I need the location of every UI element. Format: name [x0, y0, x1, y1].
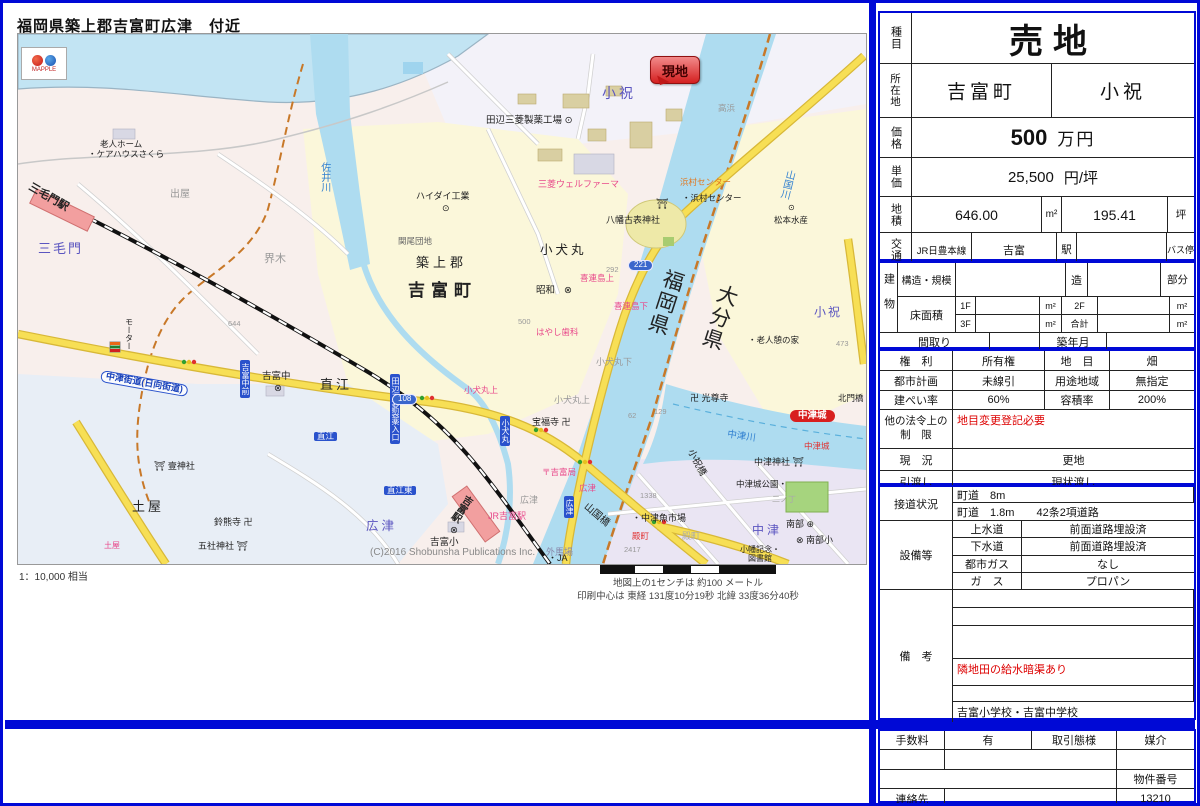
- landcat-value: 畑: [1147, 353, 1158, 369]
- map-label: 小祝橋: [685, 448, 707, 478]
- road-line-1: 町道 8m: [957, 487, 1005, 503]
- site-marker-label: 現地: [662, 61, 688, 80]
- map-label: 大分県: [697, 281, 740, 354]
- transport-label: 交通: [888, 238, 904, 262]
- map-label: 佐井川: [318, 162, 329, 192]
- map-label: ・老人憩の家: [748, 336, 799, 345]
- transport-line: JR日豊本線: [917, 243, 967, 257]
- map-label: 108: [392, 394, 417, 405]
- scale-caption: 地図上の1センチは 約100 メートル: [563, 575, 813, 589]
- built-date-label: 築年月: [1057, 334, 1090, 350]
- remarks-warning: 隣地田の給水暗渠あり: [957, 661, 1067, 677]
- map-label: 広津: [366, 520, 397, 534]
- map-label: 広津: [579, 484, 596, 493]
- globe-icon: [45, 55, 56, 66]
- map-label: 三毛門駅: [26, 182, 70, 214]
- map-label: ⊗: [564, 286, 572, 296]
- floor2-label: 2F: [1074, 301, 1085, 311]
- details-table: 接道状況 町道 8m 町道 1.8m 42条2項道路 設備等 上水道 前面道路埋…: [878, 485, 1196, 720]
- map-label: 吉富駅: [447, 492, 473, 523]
- zou-label: 造: [1071, 272, 1082, 288]
- map-canvas: 小祝高浜田辺三菱製薬工場 ⊙老人ホーム・ケアハウスさくら三毛門駅三毛門出屋界木佐…: [17, 33, 867, 565]
- broker-table: 手数料 有 取引態様 媒介 物件番号 連絡先 13210: [878, 729, 1196, 803]
- map-label: 直江: [320, 378, 352, 392]
- fee-label: 手数料: [896, 732, 929, 748]
- map-label: 福岡県: [643, 266, 686, 339]
- map-label: 浜村センター: [680, 178, 731, 187]
- map-label: 土屋: [104, 542, 120, 551]
- map-label: ・中津魚市場: [632, 514, 686, 524]
- map-label: 三菱ウェルファーマ: [538, 180, 619, 190]
- legal-table: 権 利 所有権 地 目 畑 都市計画 未線引 用途地域 無指定 建ぺい率 60%…: [878, 349, 1196, 485]
- deal-type-value: 媒介: [1145, 732, 1167, 748]
- unit-price-label: 単価: [888, 165, 904, 189]
- map-label: 広津: [520, 496, 538, 506]
- price-value: 500: [1011, 125, 1048, 151]
- madori-label: 間取り: [918, 334, 951, 350]
- map-label: ⊙: [788, 204, 795, 213]
- citygas-label: 都市ガス: [965, 556, 1009, 572]
- cityplan-value: 未線引: [982, 373, 1015, 389]
- map-label: 〒吉富局: [542, 468, 576, 477]
- map-label: 小祝: [602, 86, 636, 101]
- map-label: 松本水産: [774, 216, 808, 225]
- map-label: 中津城: [804, 442, 830, 451]
- map-label: 小犬丸上: [464, 386, 498, 395]
- panel-divider: [869, 3, 876, 806]
- map-label: 直江東: [384, 486, 416, 495]
- unit-price-value: 25,500: [1008, 169, 1054, 186]
- map-label: ⛩ 壹神社: [154, 462, 195, 472]
- map-label: 129: [654, 408, 667, 416]
- mapple-logo: MAPPLE: [21, 47, 67, 80]
- apple-icon: [32, 55, 43, 66]
- map-label: 卍 光尊寺: [690, 394, 729, 404]
- map-label: 広津: [564, 496, 574, 518]
- bus-stop-label: バス停: [1167, 243, 1194, 256]
- map-label: はやし歯科: [536, 328, 579, 337]
- deal-type-label: 取引態様: [1052, 732, 1096, 748]
- building-table: 建物 構造・規模 造 部分 床面積 1F m²: [878, 261, 1196, 349]
- remarks-schools: 吉富小学校・吉富中学校: [957, 704, 1078, 720]
- floor-area-label: 床面積: [910, 307, 943, 323]
- map-label: 高浜: [718, 104, 735, 113]
- status-label: 現 況: [900, 452, 933, 468]
- map-label: 喜連島下: [614, 302, 648, 311]
- map-label: ・ケアハウスさくら: [88, 150, 164, 159]
- map-label: 八幡古表神社: [606, 216, 660, 226]
- map-label: 直江: [314, 432, 337, 441]
- road-access-label: 接道状況: [894, 496, 938, 512]
- scale-ratio: 1：10,000 相当: [19, 568, 88, 583]
- location-label: 所在地: [888, 73, 903, 108]
- map-label: 中津街道(日向街道): [100, 370, 189, 397]
- summary-table: 種目 売地 所在地 吉富町 小祝 価格 500万円 単価 25,500円/坪 地…: [878, 11, 1196, 261]
- water-label: 上水道: [971, 521, 1004, 537]
- map-label: 山国川: [777, 168, 795, 200]
- facilities-label: 設備等: [900, 547, 933, 563]
- landcat-label: 地 目: [1061, 353, 1094, 369]
- property-no-label: 物件番号: [1134, 771, 1178, 787]
- transport-station: 吉富: [1003, 242, 1025, 258]
- gas-label: ガ ス: [971, 573, 1004, 589]
- map-label: (C)2016 Shobunsha Publications Inc.: [370, 548, 535, 559]
- fee-value: 有: [983, 732, 994, 748]
- map-label: 五社神社 ⛩: [198, 542, 248, 552]
- bcr-value: 60%: [987, 394, 1009, 406]
- property-no-value: 13210: [1140, 793, 1171, 805]
- other-law-label-2: 制 限: [900, 429, 932, 443]
- map-label: ハイダイ工業: [416, 192, 469, 202]
- map-label: 図書館: [748, 555, 772, 564]
- other-law-value: 地目変更登記必要: [957, 412, 1045, 428]
- unit-price-unit: 円/坪: [1064, 167, 1098, 188]
- zone-value: 無指定: [1136, 373, 1169, 389]
- map-label: 出屋: [170, 190, 190, 201]
- total-label: 合計: [1070, 317, 1088, 330]
- location-city: 吉富町: [947, 77, 1016, 104]
- map-label: 500: [518, 318, 531, 326]
- map-label: ⊙: [442, 204, 450, 214]
- rights-label: 権 利: [900, 353, 933, 369]
- print-center-coords: 印刷中心は 東経 131度10分19秒 北緯 33度36分40秒: [523, 588, 853, 602]
- gas-value: プロパン: [1086, 573, 1131, 589]
- map-label: 田辺三菱製薬入口: [390, 374, 400, 444]
- scale-bar: [600, 565, 776, 574]
- map-label: 南部 ⊕: [786, 520, 814, 530]
- map-label: JR吉富駅: [488, 512, 526, 522]
- part-label: 部分: [1167, 272, 1188, 287]
- map-label: ・浜村センター: [682, 194, 742, 203]
- map-label: 小祝: [814, 306, 842, 319]
- land-area-label: 地積: [888, 203, 904, 227]
- floor3-label: 3F: [960, 319, 971, 329]
- map-label: 小犬丸: [540, 244, 587, 258]
- floor1-label: 1F: [960, 301, 971, 311]
- map-label: ・JA: [548, 554, 568, 564]
- map-label: 宝福寺 卍: [532, 418, 571, 428]
- map-label: ⊗ 南部小: [796, 536, 833, 546]
- map-label: 473: [836, 340, 849, 348]
- land-area-tsubo: 195.41: [1093, 207, 1136, 223]
- map-label: 中津川: [727, 430, 757, 444]
- map-label: 二ノ丁: [772, 496, 796, 505]
- map-label: 昭和: [536, 286, 555, 296]
- map-label: 北門橋: [838, 394, 864, 403]
- map-label: 小犬丸上: [554, 396, 590, 406]
- far-value: 200%: [1138, 394, 1166, 406]
- price-unit: 万円: [1057, 125, 1095, 150]
- map-label: 殿町: [632, 532, 649, 541]
- structure-label: 構造・規模: [902, 272, 952, 287]
- cityplan-label: 都市計画: [894, 373, 938, 389]
- contact-label: 連絡先: [896, 791, 929, 806]
- m2-unit: m²: [1177, 301, 1188, 311]
- map-label: 644: [228, 320, 241, 328]
- map-labels-layer: 小祝高浜田辺三菱製薬工場 ⊙老人ホーム・ケアハウスさくら三毛門駅三毛門出屋界木佐…: [18, 34, 866, 564]
- other-law-label-1: 他の法令上の: [885, 415, 948, 429]
- zone-label: 用途地域: [1055, 373, 1099, 389]
- m2-unit: m²: [1045, 301, 1056, 311]
- map-label: 土屋: [132, 500, 164, 514]
- map-label: 2417: [624, 546, 641, 554]
- category-label: 種目: [888, 26, 904, 50]
- m2-unit: m²: [1046, 209, 1058, 220]
- map-label: 三毛門: [38, 242, 83, 256]
- map-label: ⊗: [450, 526, 458, 536]
- map-label: 山国橋: [581, 502, 611, 530]
- building-label: 建物: [881, 273, 897, 323]
- map-label: 殿町: [682, 532, 700, 542]
- map-label: 221: [628, 260, 653, 271]
- map-label: 老人ホーム: [100, 140, 142, 149]
- map-label: ⊗: [274, 384, 282, 394]
- map-label: 田辺三菱製薬工場 ⊙: [486, 116, 573, 126]
- map-label: 築上郡: [416, 256, 467, 270]
- location-area: 小祝: [1100, 77, 1146, 104]
- rights-value: 所有権: [982, 353, 1015, 369]
- land-area-m2: 646.00: [955, 207, 998, 223]
- m2-unit: m²: [1045, 319, 1056, 329]
- citygas-value: なし: [1097, 556, 1119, 572]
- sewer-label: 下水道: [971, 538, 1004, 554]
- map-label: 吉富中前: [240, 360, 250, 398]
- map-label: モーター: [124, 318, 133, 350]
- map-label: 1338: [640, 492, 657, 500]
- map-panel: 福岡県築上郡吉富町広津 付近: [3, 3, 869, 720]
- water-value: 前面道路埋設済: [1070, 521, 1147, 537]
- remarks-label: 備 考: [900, 648, 933, 664]
- price-label: 価格: [888, 126, 904, 150]
- map-label: ⛩: [656, 200, 669, 211]
- m2-unit: m²: [1177, 319, 1188, 329]
- tsubo-unit: 坪: [1176, 207, 1187, 222]
- map-label: 中津城公園・: [736, 480, 787, 489]
- map-label: 中津: [752, 524, 782, 537]
- map-label: 中津城: [790, 410, 835, 422]
- far-label: 容積率: [1061, 392, 1094, 408]
- category-value: 売地: [1009, 14, 1097, 63]
- map-label: 中津神社 ⛩: [754, 458, 804, 468]
- map-label: 吉富町: [408, 282, 477, 300]
- map-label: 62: [628, 412, 636, 420]
- bcr-label: 建ぺい率: [894, 392, 938, 408]
- map-label: 喜連島上: [580, 274, 614, 283]
- mapple-logo-text: MAPPLE: [32, 67, 56, 73]
- map-label: 小犬丸: [500, 416, 510, 446]
- site-marker: 現地: [650, 56, 700, 84]
- status-value: 更地: [1063, 452, 1085, 468]
- map-label: 小犬丸下: [596, 358, 632, 368]
- station-suffix: 駅: [1061, 242, 1072, 257]
- map-label: 界木: [264, 254, 286, 266]
- road-line-2: 町道 1.8m 42条2項道路: [957, 504, 1099, 520]
- sewer-value: 前面道路埋設済: [1070, 538, 1147, 554]
- map-label: 関尾団地: [398, 237, 432, 246]
- map-label: 鈴熊寺 卍: [214, 518, 253, 528]
- listing-sheet: 福岡県築上郡吉富町広津 付近: [0, 0, 1200, 806]
- map-label: 吉富中: [262, 372, 291, 382]
